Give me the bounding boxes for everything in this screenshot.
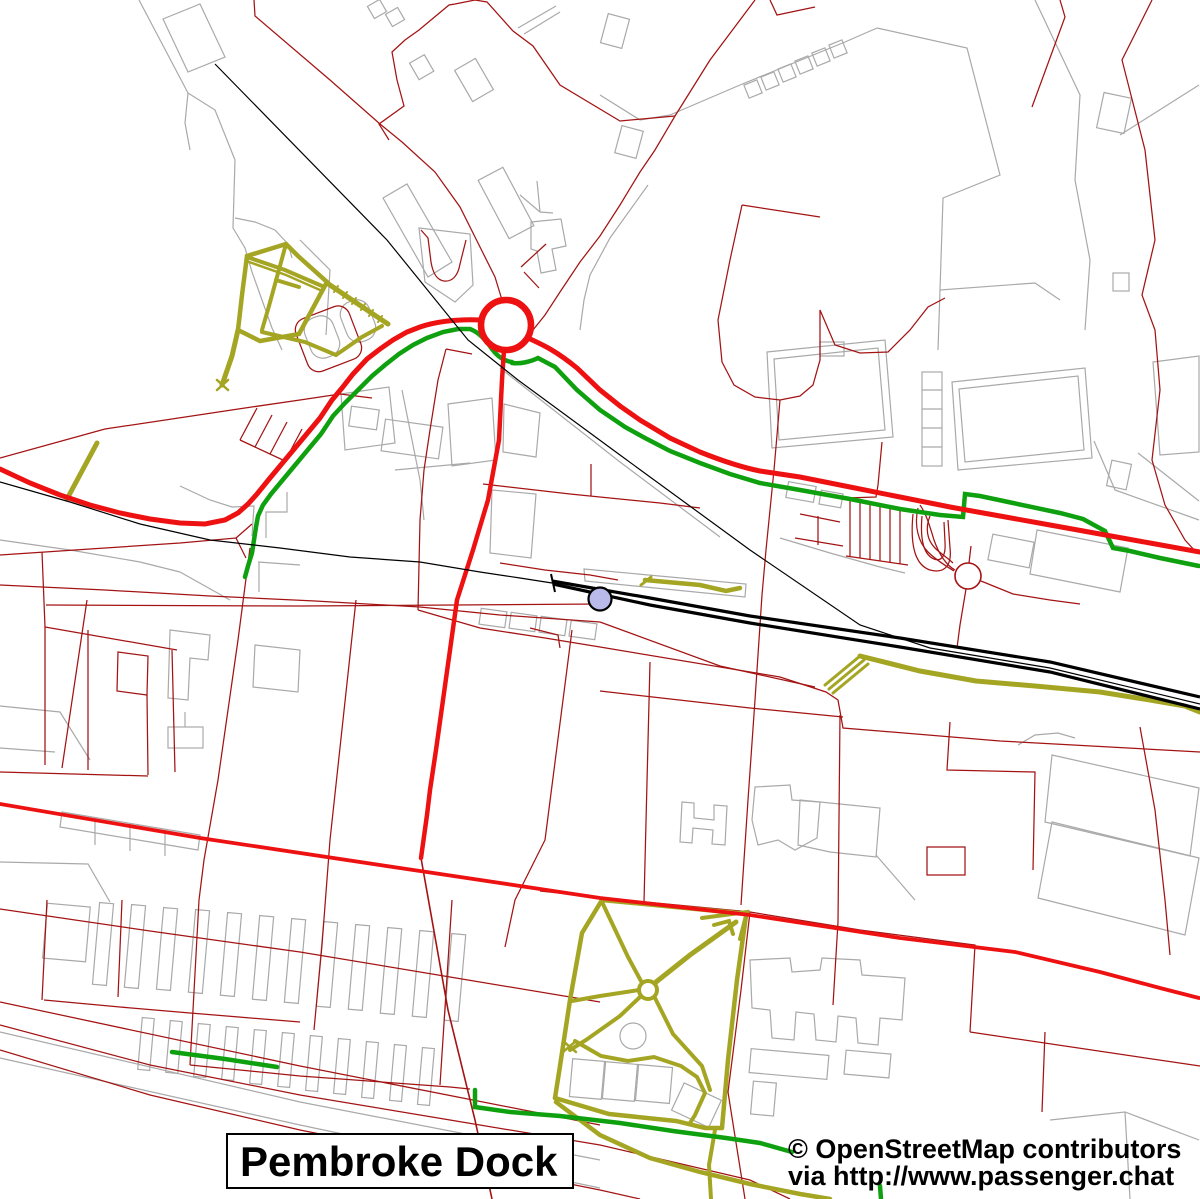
svg-text:via http://www.passenger.chat: via http://www.passenger.chat <box>788 1161 1174 1191</box>
svg-text:© OpenStreetMap contributors: © OpenStreetMap contributors <box>788 1134 1181 1164</box>
svg-text:Pembroke Dock: Pembroke Dock <box>240 1138 558 1185</box>
